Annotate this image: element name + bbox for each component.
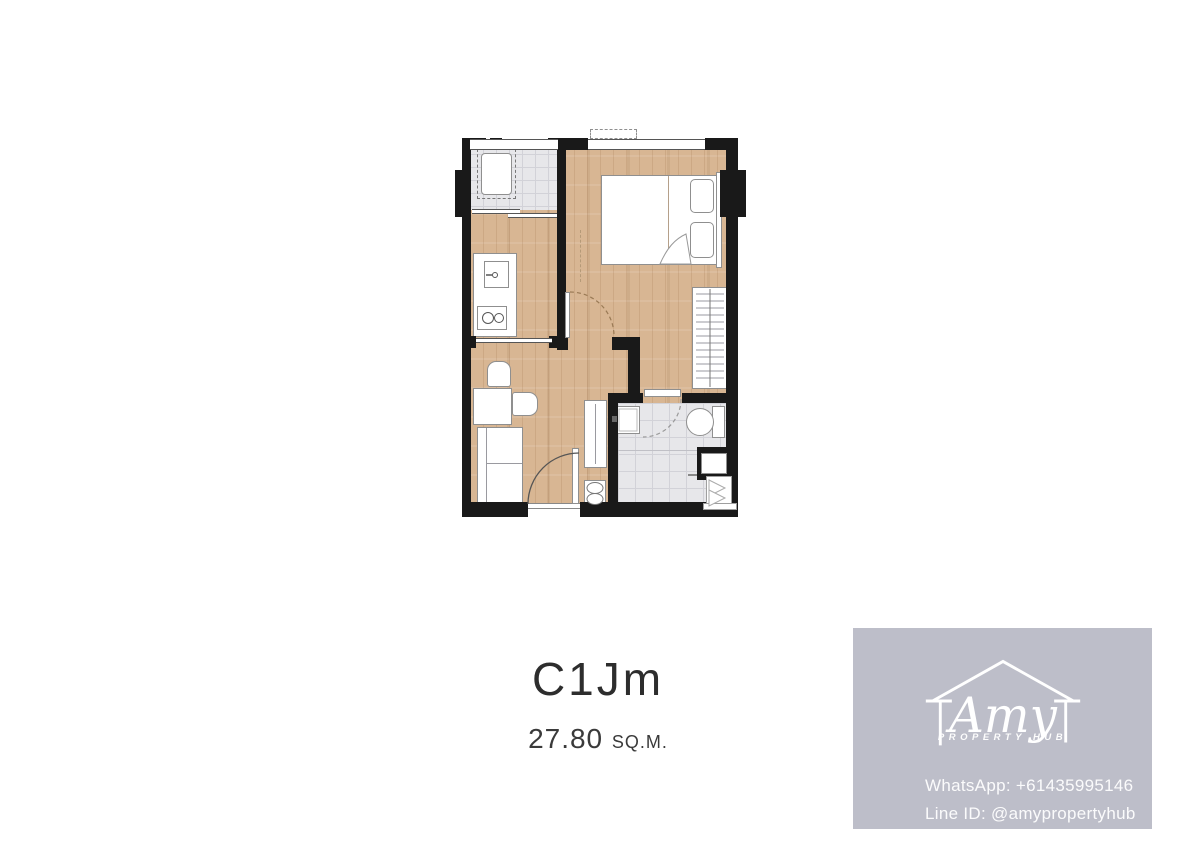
kitchen-sink: [484, 261, 509, 288]
bathroom-sink: [616, 406, 640, 434]
exterior-ledge: [703, 503, 737, 510]
bathroom-niche: [701, 453, 727, 474]
wall-segment: [557, 337, 568, 350]
shower-divider-line: [618, 450, 697, 451]
whatsapp-contact: WhatsApp: +61435995146: [925, 776, 1133, 796]
area-value: 27.80: [528, 723, 603, 754]
dashed-guide-line: [580, 230, 581, 282]
wall-column: [720, 170, 746, 217]
wall-bathroom-left: [608, 393, 618, 505]
unit-area: 27.80 SQ.M.: [448, 723, 748, 755]
stove: [477, 306, 507, 330]
sofa-back-line: [486, 428, 487, 502]
dining-table: [473, 388, 512, 425]
kitchen-partition: [476, 338, 552, 343]
page: { "unit": { "name": "C1Jm", "area_value"…: [0, 0, 1200, 848]
sofa-seat-line: [487, 463, 522, 464]
line-id-contact: Line ID: @amypropertyhub: [925, 804, 1136, 824]
pillow: [690, 179, 714, 213]
pillow: [690, 222, 714, 258]
wall-segment: [628, 350, 640, 395]
washing-machine-body: [481, 153, 512, 195]
toilet-bowl: [686, 408, 714, 436]
area-unit: SQ.M.: [612, 732, 668, 752]
wall-segment: [462, 502, 528, 517]
cabinet-line: [595, 404, 596, 464]
balcony-sliding-door: [508, 213, 557, 218]
bedroom-door-leaf: [565, 292, 570, 338]
sofa: [477, 427, 523, 503]
bathroom-door-leaf: [644, 389, 681, 397]
louver-box: [706, 476, 732, 504]
wall-column: [455, 170, 471, 217]
chair: [487, 361, 511, 387]
wall-segment: [618, 393, 643, 403]
bed-sheet-line: [668, 176, 669, 264]
entrance-door-leaf: [572, 448, 579, 504]
wall-segment: [682, 393, 738, 403]
brand-subtitle: PROPERTY HUB: [853, 732, 1152, 743]
wall-segment: [612, 337, 640, 350]
floor-plan: [448, 122, 748, 522]
wardrobe: [692, 287, 728, 389]
chair: [512, 392, 538, 416]
bedroom-window: [588, 139, 705, 150]
unit-name: C1Jm: [448, 652, 748, 706]
watermark-panel: Amy PROPERTY HUB WhatsApp: +61435995146 …: [853, 628, 1152, 829]
ac-unit-dashed: [590, 129, 637, 139]
balcony-railing: [470, 139, 558, 150]
title-block: C1Jm 27.80 SQ.M.: [448, 652, 748, 755]
